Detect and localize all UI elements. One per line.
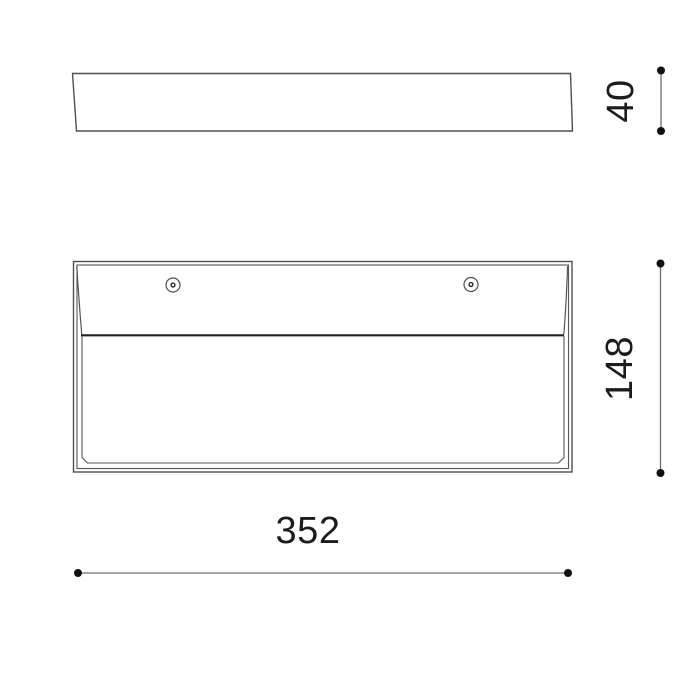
depth-dimension-label: 40 [600, 79, 642, 122]
screw-outer-circle [166, 278, 180, 292]
height-dimension: 148 [599, 260, 665, 478]
height-dimension-label: 148 [599, 336, 641, 401]
dimension-end-dot [657, 67, 665, 75]
dimension-end-dot [657, 469, 665, 477]
side-view [73, 74, 573, 132]
screw-hole-left-icon [166, 278, 180, 292]
depth-dimension: 40 [600, 67, 665, 136]
dimension-end-dot [657, 260, 665, 268]
width-dimension: 352 [74, 510, 572, 577]
side-view-outline [73, 74, 573, 132]
screw-hole-right-icon [464, 278, 478, 292]
front-view [74, 262, 573, 473]
dimension-drawing: 40 [0, 0, 700, 700]
screw-outer-circle [464, 278, 478, 292]
width-dimension-label: 352 [276, 510, 341, 552]
dimension-end-dot [657, 127, 665, 135]
dimension-end-dot [564, 569, 572, 577]
front-view-outer-outline [74, 262, 573, 473]
technical-drawing-canvas: 40 [0, 0, 700, 700]
dimension-end-dot [74, 569, 82, 577]
